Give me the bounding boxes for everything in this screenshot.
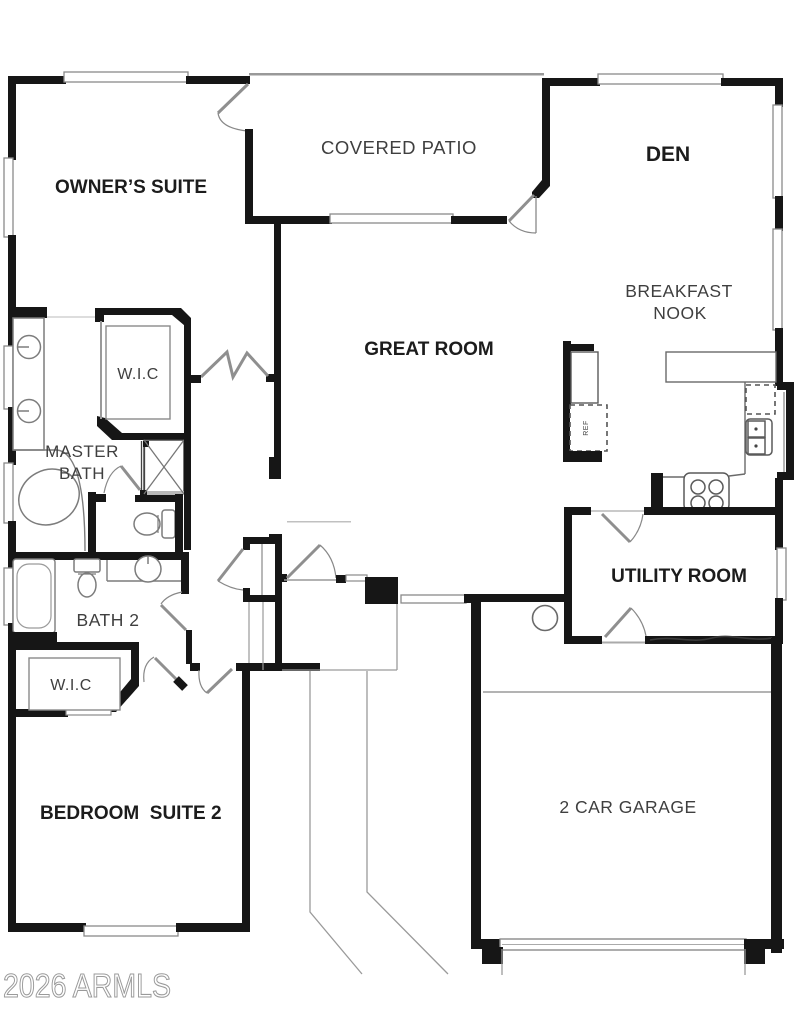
svg-text:REF: REF bbox=[583, 420, 590, 436]
svg-text:BATH: BATH bbox=[59, 464, 105, 483]
svg-text:BREAKFAST: BREAKFAST bbox=[625, 281, 733, 301]
svg-text:DEN: DEN bbox=[646, 143, 690, 166]
svg-text:W.I.C: W.I.C bbox=[117, 366, 159, 383]
svg-text:GREAT ROOM: GREAT ROOM bbox=[364, 339, 493, 360]
svg-text:2026 ARMLS: 2026 ARMLS bbox=[3, 967, 171, 1004]
svg-text:COVERED PATIO: COVERED PATIO bbox=[321, 137, 477, 158]
svg-text:MASTER: MASTER bbox=[45, 442, 119, 461]
svg-text:W.I.C: W.I.C bbox=[50, 677, 92, 694]
svg-text:NOOK: NOOK bbox=[653, 303, 707, 323]
svg-text:BEDROOM SUITE 2: BEDROOM SUITE 2 bbox=[40, 803, 222, 824]
svg-text:UTILITY ROOM: UTILITY ROOM bbox=[611, 566, 747, 587]
svg-text:2 CAR GARAGE: 2 CAR GARAGE bbox=[559, 797, 696, 817]
svg-text:OWNER’S SUITE: OWNER’S SUITE bbox=[55, 177, 207, 198]
svg-text:BATH 2: BATH 2 bbox=[77, 610, 140, 630]
